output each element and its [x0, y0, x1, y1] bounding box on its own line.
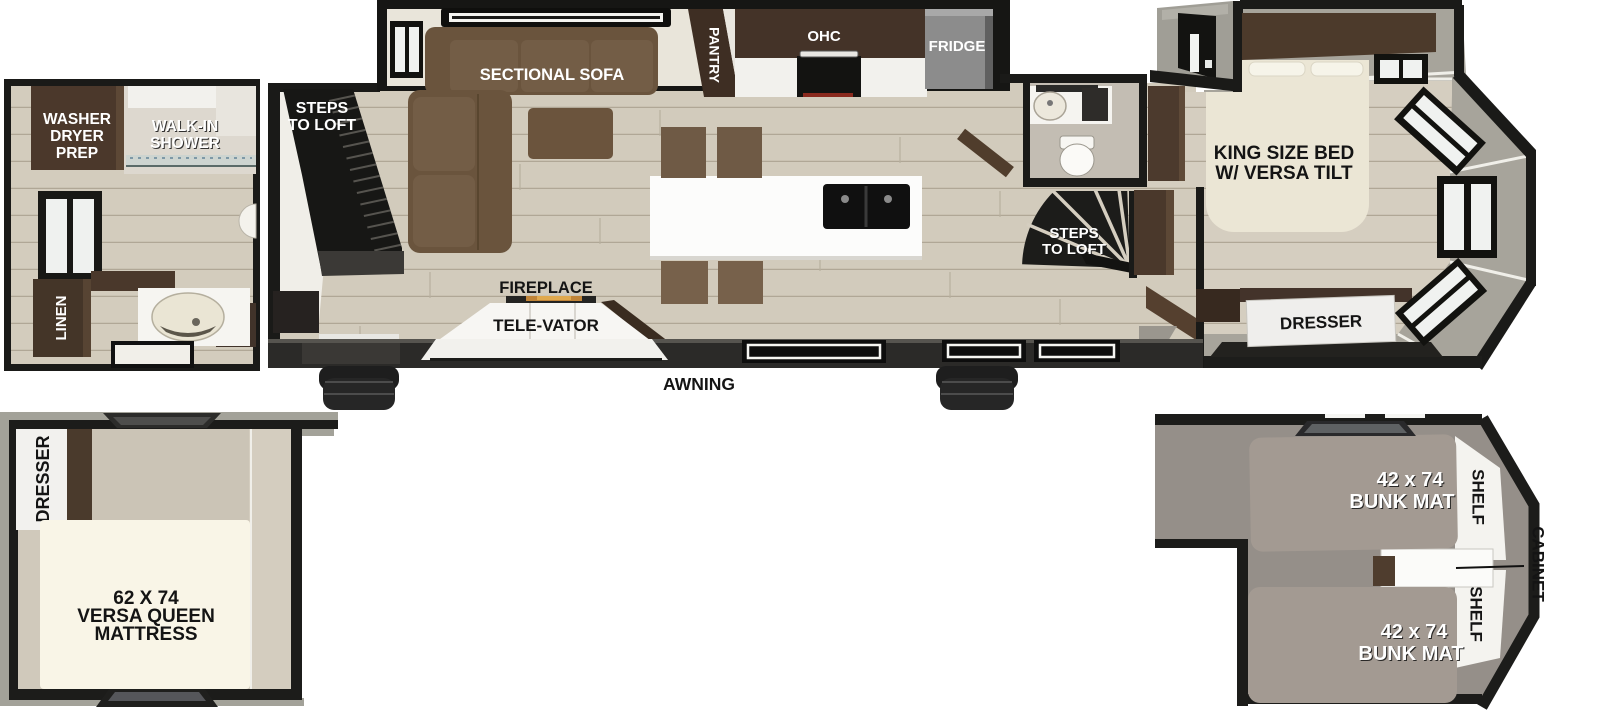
svg-text:DRESSER: DRESSER [33, 435, 53, 522]
svg-text:DRYER: DRYER [50, 128, 104, 145]
svg-text:AWNING: AWNING [663, 374, 735, 394]
svg-text:PREP: PREP [56, 145, 98, 162]
svg-text:WASHER: WASHER [43, 111, 111, 128]
svg-text:PANTRY: PANTRY [706, 27, 722, 84]
svg-text:TO LOFT: TO LOFT [288, 117, 356, 134]
svg-text:FRIDGE: FRIDGE [929, 38, 986, 55]
svg-text:STEPS: STEPS [296, 100, 349, 117]
svg-text:CABINET: CABINET [1529, 526, 1548, 602]
svg-text:WALK-IN: WALK-IN [152, 118, 218, 135]
svg-text:FIREPLACE: FIREPLACE [499, 279, 593, 297]
svg-text:SECTIONAL SOFA: SECTIONAL SOFA [480, 66, 625, 84]
svg-text:42 x 74: 42 x 74 [1381, 621, 1449, 643]
svg-text:W/ VERSA TILT: W/ VERSA TILT [1215, 163, 1353, 184]
svg-text:TELE-VATOR: TELE-VATOR [493, 316, 599, 335]
svg-text:SHOWER: SHOWER [150, 135, 220, 152]
svg-text:STEPS: STEPS [1049, 225, 1098, 242]
svg-text:BUNK MAT: BUNK MAT [1358, 643, 1463, 665]
svg-text:MATTRESS: MATTRESS [94, 624, 197, 645]
svg-text:KING SIZE BED: KING SIZE BED [1214, 143, 1354, 164]
svg-text:BUNK MAT: BUNK MAT [1349, 491, 1454, 513]
svg-text:SHELF: SHELF [1469, 469, 1488, 525]
svg-text:TO LOFT: TO LOFT [1042, 241, 1106, 258]
svg-text:LINEN: LINEN [53, 296, 70, 341]
svg-text:SHELF: SHELF [1467, 586, 1486, 642]
svg-text:42 x 74: 42 x 74 [1377, 469, 1445, 491]
svg-text:OHC: OHC [807, 28, 841, 45]
svg-text:DRESSER: DRESSER [1280, 312, 1363, 334]
